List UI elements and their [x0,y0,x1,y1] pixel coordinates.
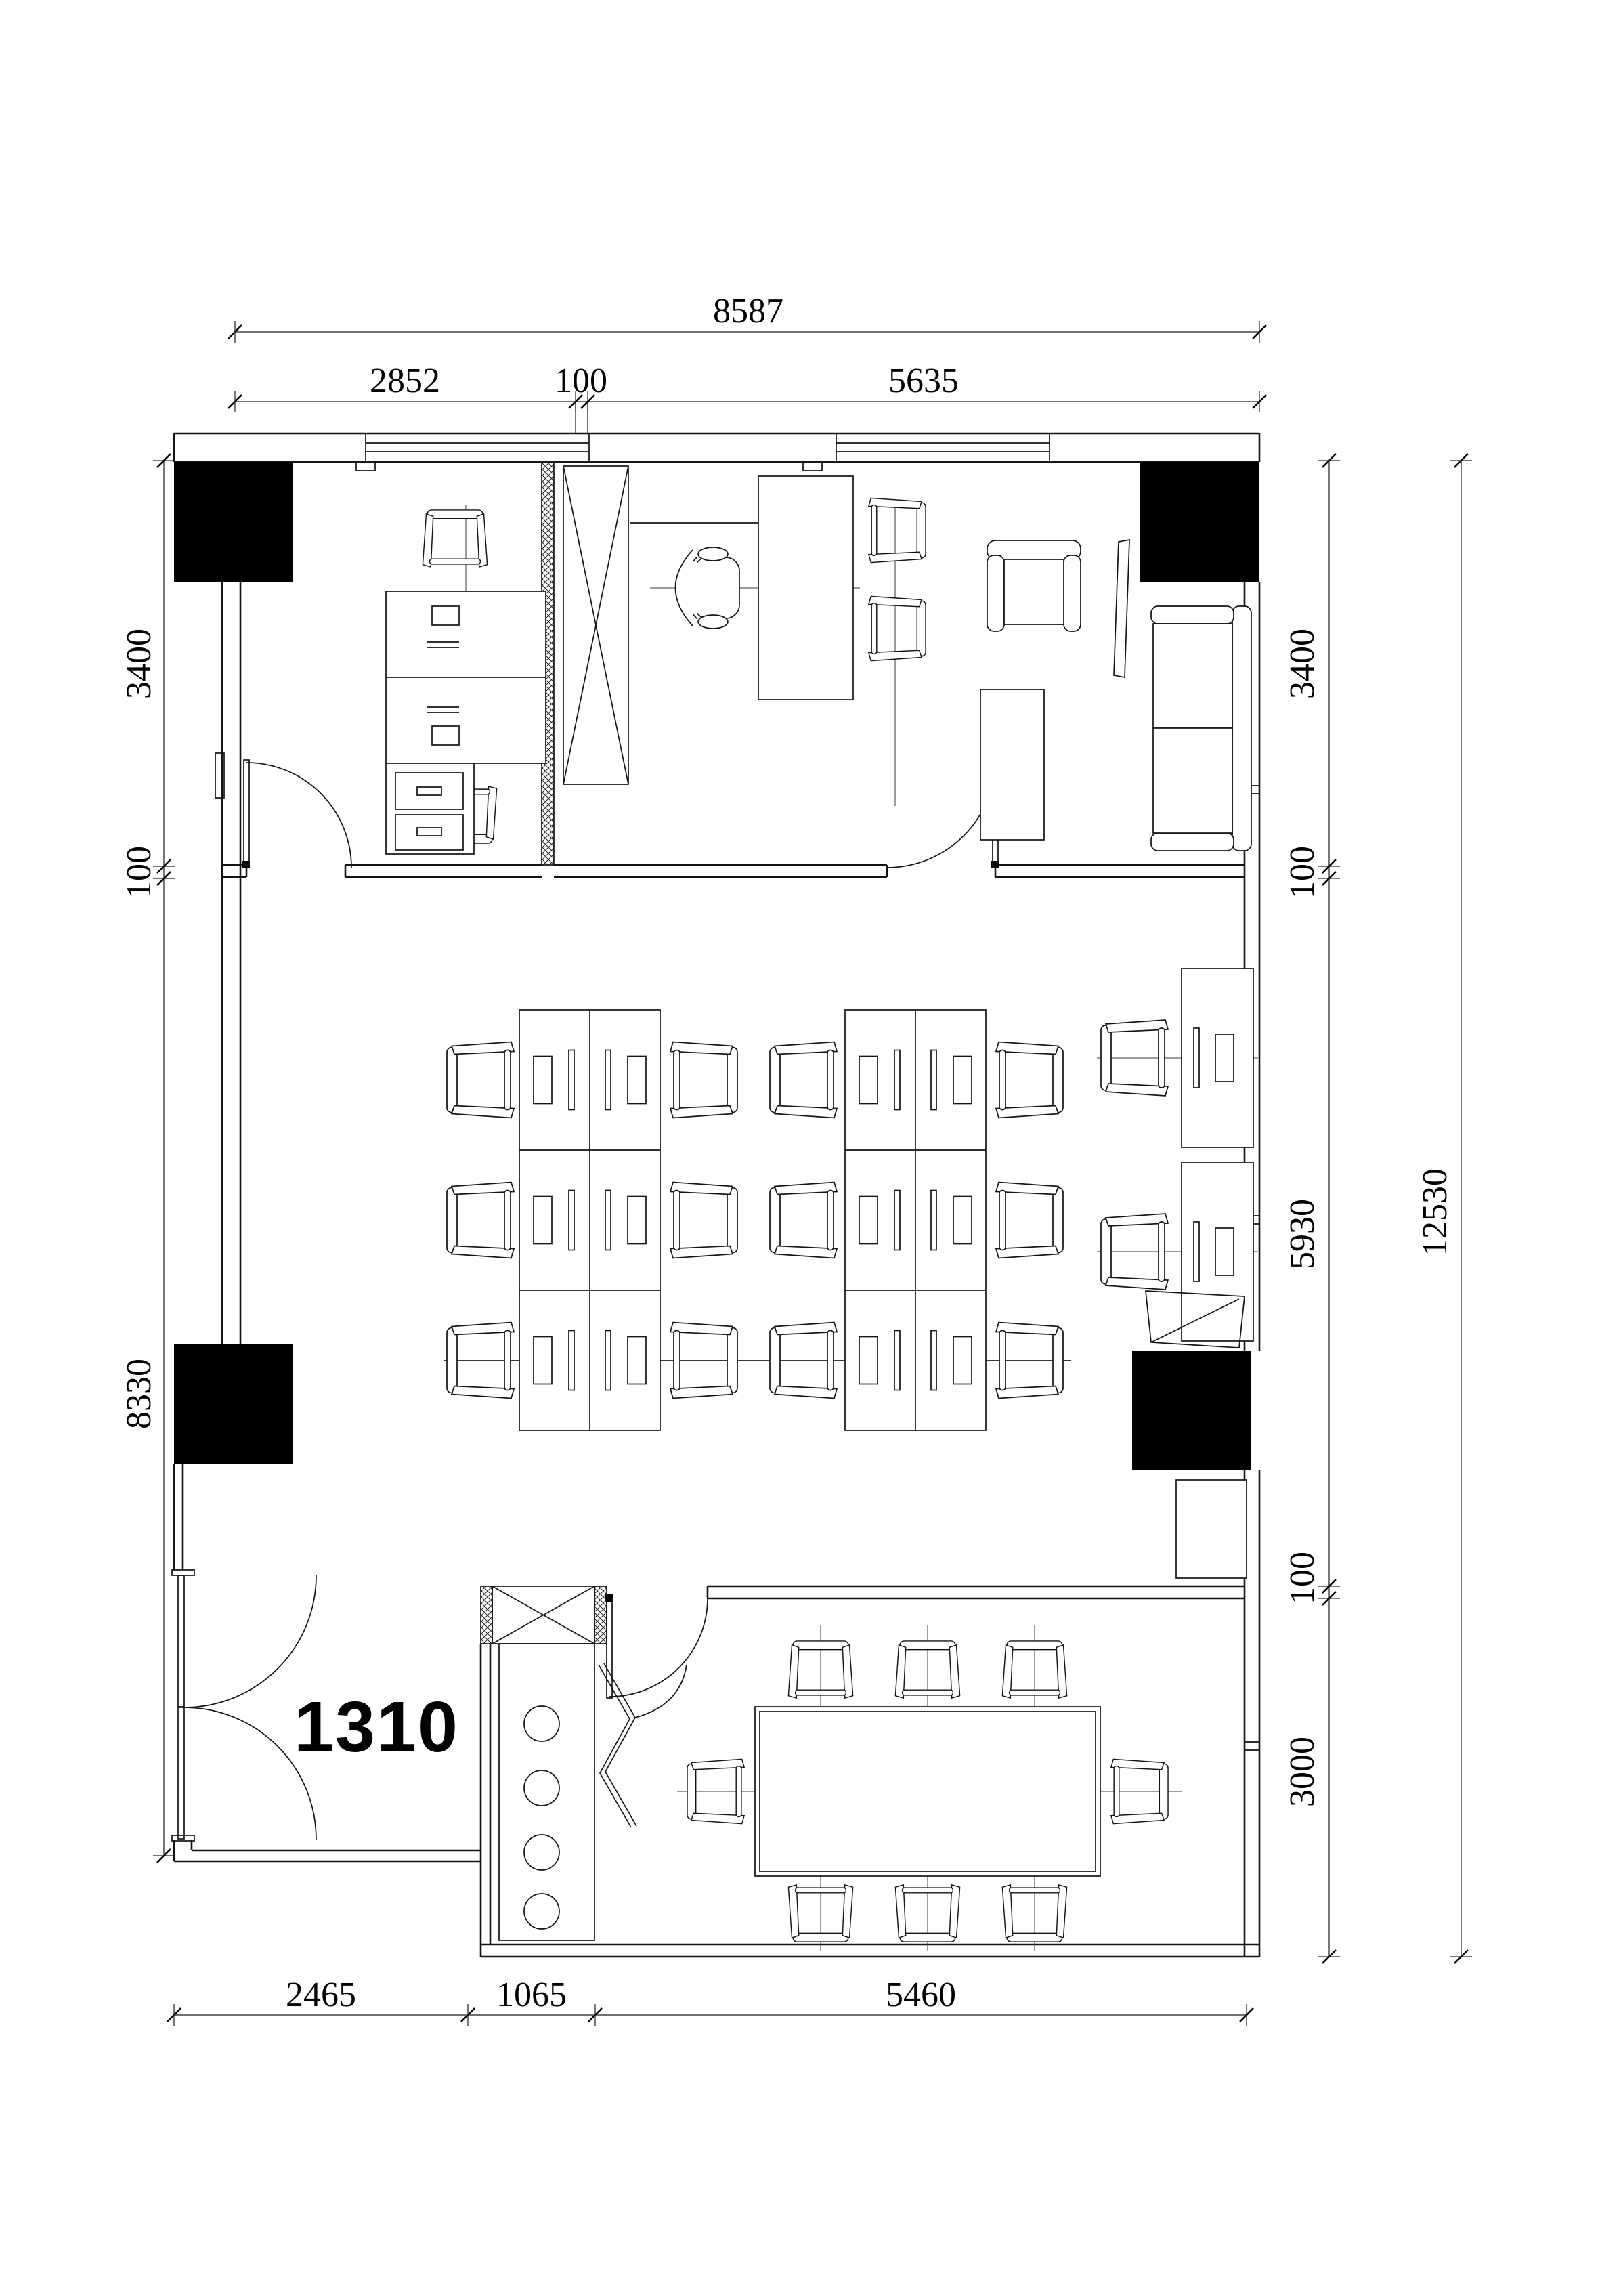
furniture-rect [569,1050,574,1110]
guest-chair [869,498,926,562]
door-swing-arc [246,763,351,868]
door-leaf [244,760,249,865]
furniture-rect [605,1191,611,1250]
window-sill-mark [356,462,375,471]
window-sill-mark [803,462,822,471]
pantry-fixture [524,1894,559,1929]
furniture-rect [953,1337,972,1384]
office-front-partition [222,865,1245,877]
furniture-rect [605,1050,611,1110]
pantry-fixture [524,1706,559,1741]
dim-left-lower: 8330 [120,1359,158,1429]
left-office-door [244,760,351,868]
dim-top-right-office: 5635 [888,362,959,400]
furniture-rect [931,1191,936,1250]
furniture-rect [417,787,441,795]
furniture-rect [859,1057,878,1104]
conference-table [755,1707,1100,1876]
dim-bottom-left: 2465 [286,1976,356,2014]
top-window-left [366,433,589,462]
dim-top-total: 8587 [713,292,783,331]
furniture-rect [417,828,441,836]
dim-right-open-office: 5930 [1283,1199,1322,1269]
furniture-path [1114,540,1129,677]
executive-chair [676,547,740,629]
bottom-wall-meeting [481,1944,1259,1957]
floor-plan-sheet: 8587 2852 100 5635 3400 100 8330 3400 10… [0,0,1600,2296]
furniture-rect [859,1337,878,1384]
furniture-rect [432,726,459,745]
column-bottom-left [174,1344,293,1464]
pantry-wall [481,1644,490,1944]
furniture-rect [758,476,853,700]
office-chair [423,510,487,567]
door-leaf [178,1707,184,1839]
column-top-left [174,462,293,582]
door-frame-cap [172,1570,194,1575]
furniture-rect [569,1191,574,1250]
furniture-rect [894,1331,900,1390]
furniture-rect [432,606,459,625]
dim-right-wall-upper: 100 [1283,846,1322,899]
armchair [987,540,1081,631]
furniture-rect [894,1191,900,1250]
bottom-wall-entry [174,1840,481,1861]
right-window-mark-low [1245,1742,1259,1750]
furniture-rect [628,1057,646,1104]
furniture-rect [1215,1228,1234,1275]
dim-left-wall: 100 [120,846,158,899]
dim-right-total: 12530 [1416,1168,1454,1256]
furniture-rect [894,1050,900,1110]
furniture-layer [386,466,1258,1951]
right-wall-meeting [1245,1598,1259,1957]
furniture-rect [931,1331,936,1390]
door-swing-arc [609,1598,708,1697]
left-wall-lower [174,1464,183,1570]
furniture-rect [628,1197,646,1244]
dim-right-meeting-room: 3000 [1283,1737,1322,1807]
shaft-block [481,1586,607,1644]
dim-bottom-right: 5460 [886,1976,956,2014]
furniture-rect [605,1331,611,1390]
dim-right-office-depth: 3400 [1283,629,1322,699]
floor-plan-drawing: 8587 2852 100 5635 3400 100 8330 3400 10… [0,0,1600,2296]
furniture-rect [953,1057,972,1104]
pantry-fixture [524,1835,559,1870]
coffee-table [980,689,1044,840]
furniture-rect [1194,1222,1199,1281]
furniture-rect [953,1197,972,1244]
furniture-rect [1194,1028,1199,1088]
furniture-rect [569,1331,574,1390]
furniture-rect [859,1197,878,1244]
door-swing-arc [887,759,995,868]
meeting-room-wall [708,1586,1245,1598]
furniture-rect [1215,1034,1234,1082]
furniture-rect [534,1337,552,1384]
furniture-rect [628,1337,646,1384]
pantry-fixture [524,1770,559,1806]
meeting-room-door [605,1594,708,1698]
top-wall [174,433,1259,462]
column-bottom-right [1132,1351,1251,1470]
furniture-path [604,1663,636,1826]
dim-bottom-middle: 1065 [496,1976,567,2014]
dim-left-office-depth2: 3400 [120,629,158,699]
furniture-rect [534,1197,552,1244]
shaft-hatch [594,1586,607,1644]
sofa [1151,606,1251,851]
dim-top-partition: 100 [555,362,607,400]
dim-top-left-office: 2852 [370,362,440,400]
furniture-path [599,1665,631,1827]
guest-chair [869,596,926,660]
top-window-right [836,433,1050,462]
shaft-x [492,1586,594,1644]
furniture-rect [931,1050,936,1110]
furniture-rect [534,1057,552,1104]
dim-right-wall-lower: 100 [1283,1552,1322,1604]
left-curtain-wall [222,582,240,1344]
room-number-label: 1310 [294,1687,459,1767]
column-top-right [1140,462,1259,582]
cabinet [1176,1480,1247,1578]
door-leaf [178,1575,184,1707]
shaft-hatch [481,1586,492,1644]
